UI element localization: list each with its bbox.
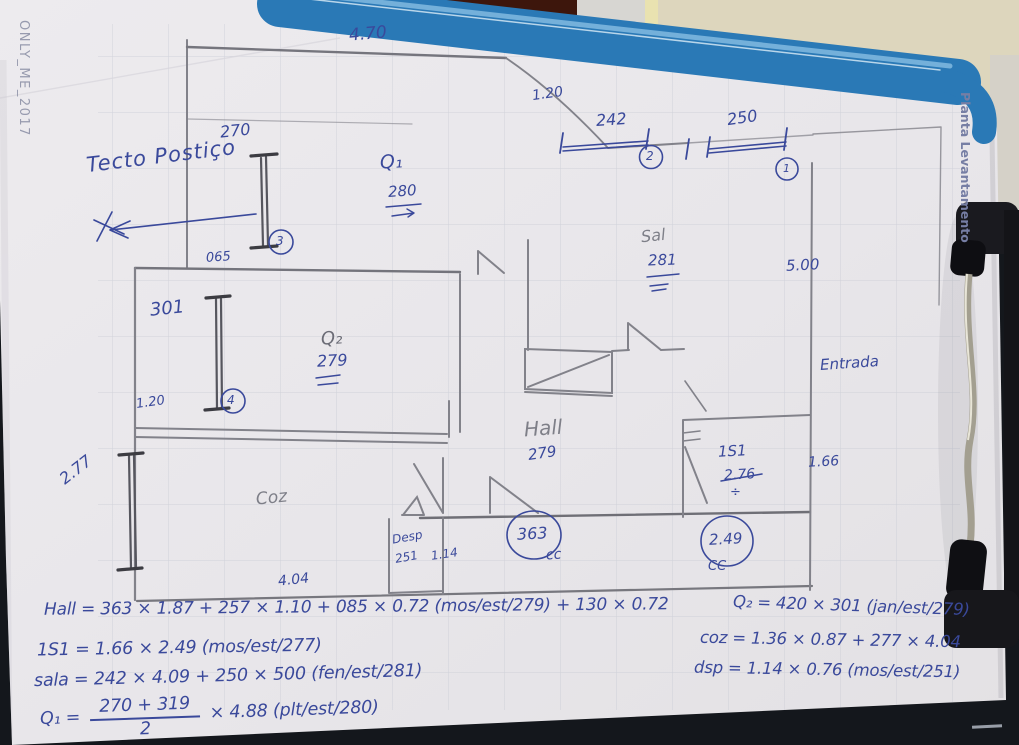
paper-side-label: Planta Levantamento bbox=[958, 92, 973, 243]
dim-sala-height: 281 bbox=[648, 253, 677, 269]
dim-hall-height: 279 bbox=[527, 444, 557, 463]
dim-window4-height: 301 bbox=[149, 298, 185, 319]
dim-wall-offset: 065 bbox=[206, 250, 232, 265]
hall-length-value: 363 bbox=[517, 525, 548, 543]
formula-q1-denominator: 2 bbox=[90, 718, 201, 742]
floor-plan-photo: ONLY_ME_2017 Planta Levantamento Tecto P… bbox=[0, 0, 1019, 745]
room-bedroom2: Q₂ bbox=[320, 329, 343, 348]
marker-1: 1 bbox=[783, 163, 790, 174]
room-sala: Sal bbox=[640, 227, 666, 245]
dim-window1-width: 250 bbox=[726, 108, 758, 128]
marker-2: 2 bbox=[646, 150, 654, 162]
room-hall: Hall bbox=[523, 417, 563, 440]
division-sign: ÷ bbox=[730, 486, 741, 499]
formula-q1-fraction: 270 + 319 2 bbox=[89, 694, 201, 741]
dim-top-width: 4.70 bbox=[348, 24, 387, 44]
formula-q1-rhs: × 4.88 (plt/est/280) bbox=[209, 697, 379, 723]
room-entrance: Entrada bbox=[820, 354, 880, 373]
room-bathroom: 1S1 bbox=[718, 443, 747, 459]
paper-watermark: ONLY_ME_2017 bbox=[16, 20, 31, 137]
dim-sala-depth: 5.00 bbox=[786, 257, 820, 274]
dim-window3-height: 270 bbox=[219, 121, 251, 140]
dim-bedroom2-height: 279 bbox=[317, 352, 348, 370]
dim-pantry-depth: 1.14 bbox=[430, 546, 458, 562]
dim-bathroom-old: 2.76 bbox=[724, 467, 756, 483]
bathroom-length-value: 2.49 bbox=[709, 531, 743, 548]
dim-entrance-width: 1.66 bbox=[808, 454, 840, 470]
marker-4: 4 bbox=[227, 394, 235, 406]
room-kitchen: Coz bbox=[255, 488, 288, 508]
dim-pantry-width: 251 bbox=[394, 549, 419, 565]
dim-bedroom1-height: 280 bbox=[388, 183, 418, 200]
dim-kitchen-width: 4.04 bbox=[277, 571, 309, 588]
dim-left-offset: 1.20 bbox=[135, 394, 165, 411]
formula-q1-lhs: Q₁ = bbox=[40, 708, 81, 729]
room-bedroom1: Q₁ bbox=[380, 152, 404, 172]
cc-bathroom: CC bbox=[708, 560, 726, 573]
dim-top-offset: 1.20 bbox=[531, 85, 564, 103]
marker-3: 3 bbox=[276, 235, 284, 247]
dim-window2-width: 242 bbox=[595, 111, 627, 129]
cc-hall: cc bbox=[546, 547, 562, 562]
